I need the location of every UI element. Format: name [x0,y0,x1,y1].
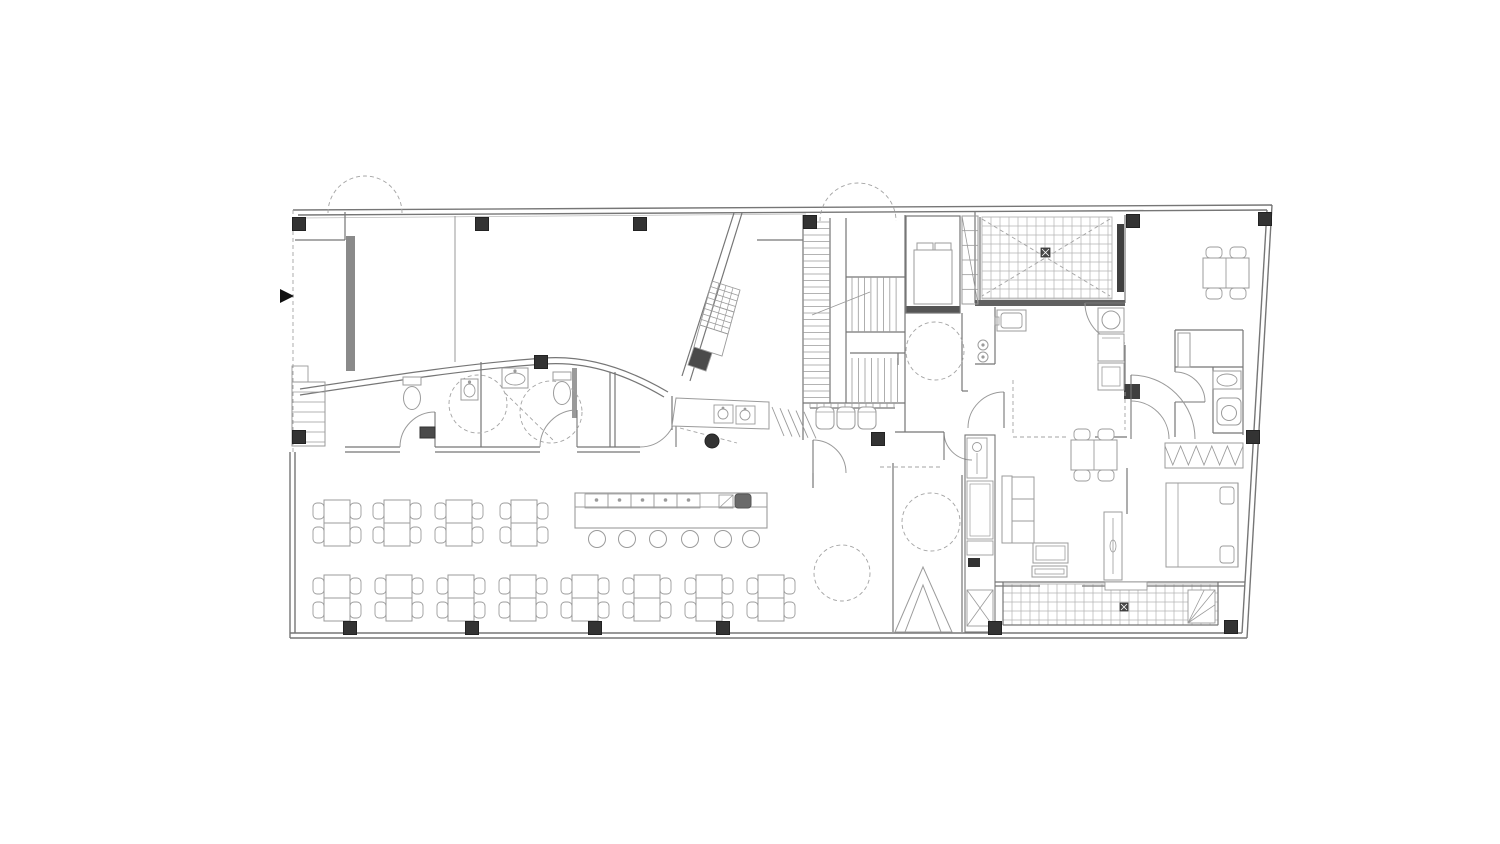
bar-cell-dot [664,499,667,502]
floor-plan-drawing [0,0,1500,844]
sink-fixture [502,368,528,388]
column [1259,213,1272,226]
bar-counter [575,493,767,528]
column [1127,215,1140,228]
chair [536,578,547,594]
solid-wall-fill [906,306,960,313]
chair [437,578,448,594]
sofa-cushion [1012,477,1034,499]
sink-faucet [468,381,470,383]
chair [474,578,485,594]
chair [350,578,361,594]
toilet-tank [403,377,421,385]
toilet-fixture [553,372,571,405]
toilet2-fixture [1217,398,1241,425]
chair [537,527,548,543]
waiting-seat [858,407,876,429]
bar-stool [589,531,606,548]
column [589,622,602,635]
fridge-fixture [1098,308,1124,332]
chair [1074,429,1090,440]
ramptri-fixture [1188,590,1215,623]
column [717,622,730,635]
chair [1230,288,1246,299]
seats3-fixture [816,407,876,429]
chair [350,527,361,543]
burner-dot [982,344,984,346]
chair [1098,429,1114,440]
solid-wall-fill [1117,224,1124,292]
sink-fixture [461,379,478,400]
ksink-fixture [995,310,1026,331]
drain-fixture [1041,248,1050,257]
bar-stool [650,531,667,548]
column [466,622,479,635]
column [344,622,357,635]
chair [660,602,671,618]
column [476,218,489,231]
toilet-bowl [554,382,571,405]
column [1247,431,1260,444]
solid-wall-fill [346,236,355,371]
sinkoval-fixture [1213,371,1241,389]
chair [435,527,446,543]
chair [561,578,572,594]
bump-fixture [1105,582,1147,590]
chair [623,578,634,594]
ctable-fixture [1033,543,1068,563]
sofa-fixture [1002,476,1034,543]
chair [1230,247,1246,258]
shower-fixture [1178,333,1190,367]
chair [500,527,511,543]
sofa-back [1002,476,1012,543]
chair [313,602,324,618]
chair [784,602,795,618]
chair [1098,470,1114,481]
toilet-tank [553,372,571,380]
bar-stool [682,531,699,548]
column [989,622,1002,635]
sink-faucet [514,370,516,372]
counter-sink-faucet [722,407,724,409]
chair [537,503,548,519]
chair [660,578,671,594]
column [1225,621,1238,634]
solid-wall-fill [1124,384,1140,399]
column [293,431,306,444]
column [804,216,817,229]
chair [410,527,421,543]
chair [722,578,733,594]
column [872,433,885,446]
chair [437,602,448,618]
floor-plan-page [0,0,1500,844]
darkbox-fixture [420,427,435,438]
chair [313,578,324,594]
chair [1074,470,1090,481]
chair [747,602,758,618]
chair [722,602,733,618]
ctable-fixture [1032,566,1067,577]
chair [472,503,483,519]
column [535,356,548,369]
chair [784,578,795,594]
chair [373,527,384,543]
shower-screen [1178,333,1190,367]
floor-box [420,427,435,438]
chair [598,602,609,618]
chair [500,503,511,519]
sofa-cushion [1012,499,1034,521]
chair [412,578,423,594]
wall-threshold [1105,582,1147,590]
chair [499,578,510,594]
bar-cell-dot [687,499,690,502]
chair [623,602,634,618]
chair [598,578,609,594]
chair [685,578,696,594]
chair [375,578,386,594]
chair [474,602,485,618]
chair [410,503,421,519]
waiting-seat [816,407,834,429]
chair [375,602,386,618]
sliding-fixture [1104,512,1122,580]
column [634,218,647,231]
toilet-fixture [403,377,421,410]
column [293,218,306,231]
bar-stool [619,531,636,548]
chair [435,503,446,519]
bar-cell-dot [618,499,621,502]
bar-stool [715,531,732,548]
bar-stool [743,531,760,548]
chair [373,503,384,519]
sofa-cushion [1012,521,1034,543]
chair [412,602,423,618]
chair [1206,288,1222,299]
bar-cell-dot [641,499,644,502]
solid-wall-fill [968,558,980,567]
round-column [705,434,719,448]
bed-outline [1166,483,1238,567]
counter-sink-faucet [744,408,746,410]
chair [1206,247,1222,258]
csinks-fixture [672,398,769,429]
wardrobe-fixture [1165,443,1243,468]
chair [313,527,324,543]
chair [536,602,547,618]
bar-cell-dot [595,499,598,502]
coffee-table [1032,566,1067,577]
chair [350,503,361,519]
cash-register [735,494,751,508]
toilet-bowl [404,387,421,410]
drain-fixture [1120,603,1128,611]
chair [499,602,510,618]
chair [313,503,324,519]
bed-fixture [1166,483,1238,567]
chair [350,602,361,618]
burner-dot [982,356,984,358]
chair [685,602,696,618]
chair [747,578,758,594]
chair [561,602,572,618]
waiting-seat [837,407,855,429]
chair [472,527,483,543]
